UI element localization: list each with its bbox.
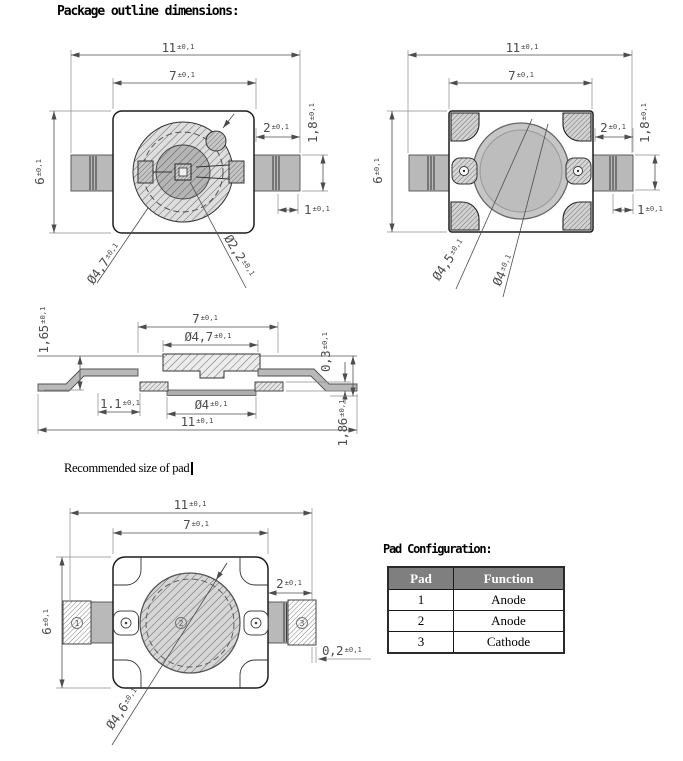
- dim-label-0-2: 0,2±0,1: [322, 643, 362, 658]
- dim-label-2: 2±0,1: [600, 120, 626, 135]
- dim-label-7: 7±0,1: [508, 68, 534, 83]
- dim-label-dia4: Ø4±0,1: [489, 252, 516, 288]
- col-header-function: Function: [454, 567, 565, 590]
- table-row: 2 Anode: [388, 611, 564, 632]
- recommended-pad-label: Recommended size of pad: [64, 461, 193, 476]
- dim-label-11: 11±0,1: [506, 40, 539, 55]
- pad-1-area: 1: [63, 601, 113, 644]
- dim-label-1-8: 1,8±0,1: [637, 103, 652, 143]
- pad-config-table: Pad Function 1 Anode 2 Anode 3 Cathode: [387, 566, 565, 654]
- dim-label-7: 7±0,1: [169, 68, 195, 83]
- dim-label-1-1: 1.1±0,1: [100, 396, 140, 411]
- dim-label-7: 7±0,1: [183, 517, 209, 532]
- side-pad-right: [566, 158, 591, 184]
- lead-left: [409, 155, 449, 191]
- lead-right: [254, 155, 300, 191]
- technical-drawings-canvas: 11±0,1 7±0,1 6±0,1 2±0,1 1,8±0,1 1±0,1 Ø…: [0, 0, 683, 761]
- cell-pad-2: 2: [388, 611, 454, 632]
- table-header-row: Pad Function: [388, 567, 564, 590]
- dim-label-dia4-7: Ø4,7±0,1: [185, 329, 232, 344]
- table-row: 1 Anode: [388, 590, 564, 611]
- dim-label-2: 2±0,1: [276, 576, 302, 591]
- dim-label-2: 2±0,1: [263, 120, 289, 135]
- table-row: 3 Cathode: [388, 632, 564, 654]
- dim-label-1: 1±0,1: [304, 202, 330, 217]
- dim-label-dia4-7: Ø4,7±0,1: [84, 240, 124, 287]
- pad-config-title: Pad Configuration:: [383, 542, 491, 556]
- lead-left: [71, 155, 113, 191]
- dim-label-11: 11±0,1: [181, 414, 214, 429]
- dim-label-11: 11±0,1: [162, 40, 195, 55]
- pad-number-1: 1: [75, 619, 80, 628]
- side-pad-left: [452, 158, 477, 184]
- cell-pad-3: 3: [388, 632, 454, 654]
- bottom-strip: [167, 390, 256, 396]
- dim-label-1-65: 1,65±0,1: [36, 307, 51, 354]
- dim-label-0-3: 0,3±0,1: [318, 332, 333, 372]
- drawing-bottom-view: 11±0,1 7±0,1 6±0,1 2±0,1 1,8±0,1 1±0,1 Ø…: [370, 40, 663, 297]
- inner-pad-right: [244, 611, 268, 635]
- dim-label-11: 11±0,1: [174, 497, 207, 512]
- dim-label-1: 1±0,1: [637, 202, 663, 217]
- page-title: Package outline dimensions:: [57, 4, 239, 19]
- dim-label-dia2-2: Ø2,2±0,1: [221, 232, 259, 280]
- cell-function-1: Anode: [454, 590, 565, 611]
- lead-left: [38, 369, 138, 391]
- dim-label-6: 6±0,1: [32, 159, 47, 185]
- pad-3-area: 3: [268, 600, 316, 645]
- pad-number-2: 2: [179, 619, 184, 628]
- dim-label-6: 6±0,1: [370, 158, 385, 184]
- cell-pad-1: 1: [388, 590, 454, 611]
- pad-number-3: 3: [300, 619, 305, 628]
- drawing-top-view: 11±0,1 7±0,1 6±0,1 2±0,1 1,8±0,1 1±0,1 Ø…: [32, 40, 330, 288]
- dim-label-7: 7±0,1: [192, 311, 218, 326]
- lead-right: [593, 155, 633, 191]
- dim-label-6: 6±0,1: [39, 609, 54, 635]
- dim-label-dia4-6: Ø4,6±0,1: [103, 685, 142, 732]
- drawing-pad-layout: 1 3 2: [39, 497, 371, 745]
- col-header-pad: Pad: [388, 567, 454, 590]
- dim-label-1-86: 1,86±0,1: [335, 400, 350, 447]
- inner-pad-left: [114, 611, 139, 635]
- cell-function-3: Cathode: [454, 632, 565, 654]
- dim-label-1-8: 1,8±0,1: [305, 103, 320, 143]
- drawing-side-view: 7±0,1 Ø4,7±0,1 1,65±0,1 1.1±0,1 Ø4±0,1 1…: [36, 307, 358, 447]
- cell-function-2: Anode: [454, 611, 565, 632]
- dim-label-dia4: Ø4±0,1: [195, 397, 228, 412]
- datasheet-page: 11±0,1 7±0,1 6±0,1 2±0,1 1,8±0,1 1±0,1 Ø…: [0, 0, 683, 761]
- text-cursor: [191, 462, 193, 475]
